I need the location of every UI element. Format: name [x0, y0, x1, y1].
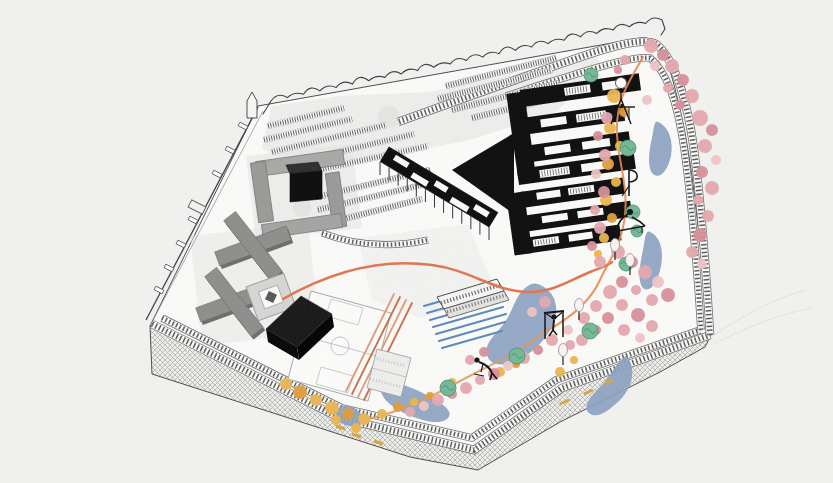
site-plan-svg: [0, 0, 833, 483]
paper-grain-overlay: [0, 0, 833, 483]
site-plan-illustration: [0, 0, 833, 483]
